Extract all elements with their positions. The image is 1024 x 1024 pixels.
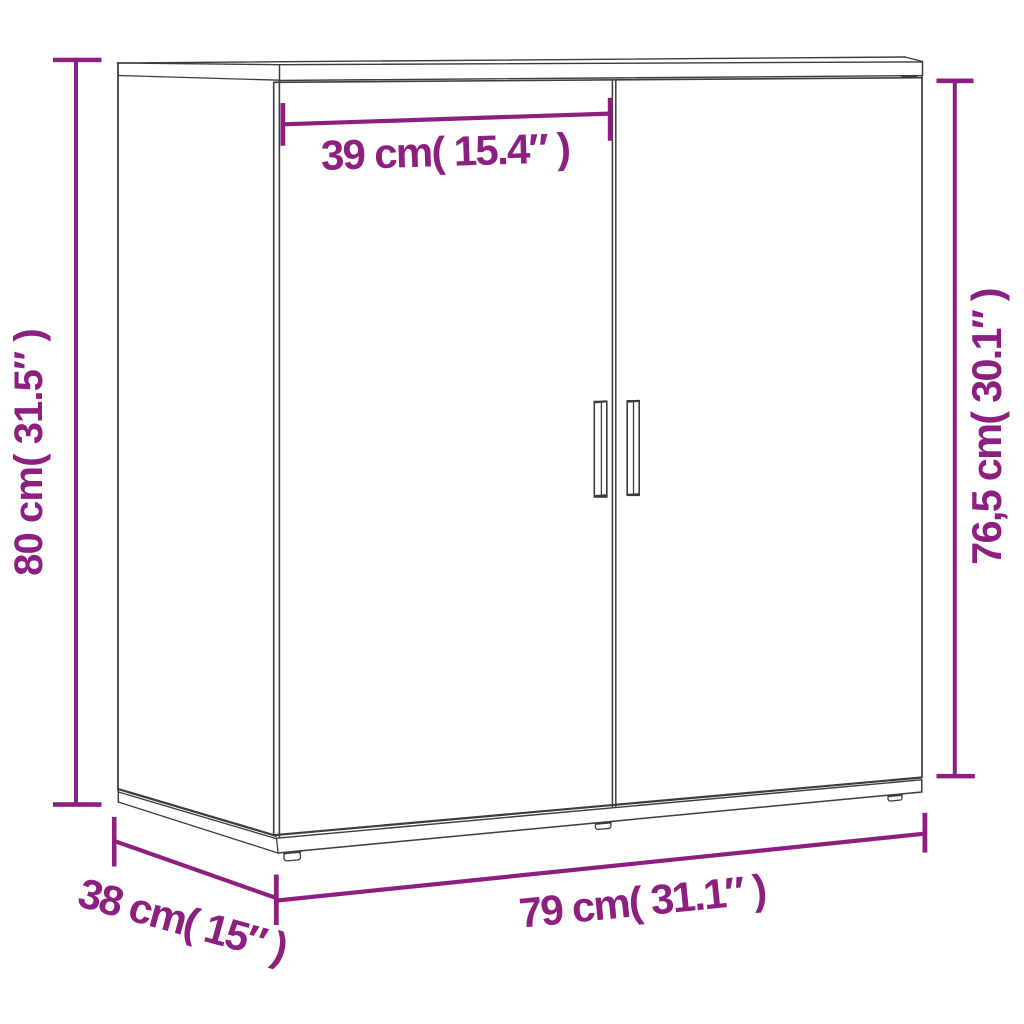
svg-text:76,5 cm( 30.1″ ): 76,5 cm( 30.1″ ) [963,289,1010,565]
svg-text:38 cm( 15″ ): 38 cm( 15″ ) [73,869,291,971]
svg-text:80 cm( 31.5″ ): 80 cm( 31.5″ ) [7,329,51,576]
svg-text:39 cm( 15.4″ ): 39 cm( 15.4″ ) [320,124,570,179]
svg-text:79 cm( 31.1″ ): 79 cm( 31.1″ ) [517,865,768,936]
